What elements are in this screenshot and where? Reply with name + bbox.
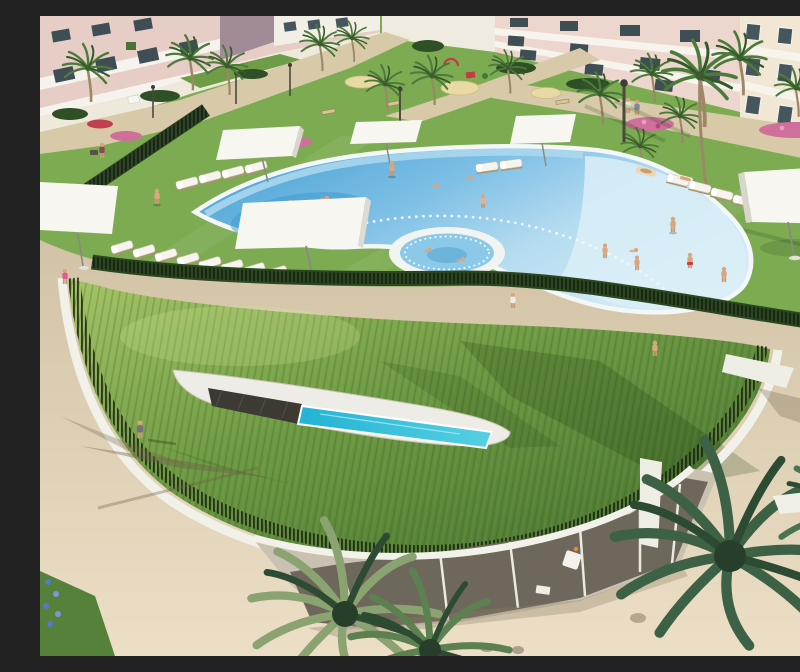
resort-aerial-render: Aerial render of a resort-style resident… (40, 16, 800, 656)
person-shadow (512, 646, 524, 654)
balcony-plant (126, 42, 136, 50)
lamp-flame (574, 547, 578, 551)
stroller (90, 150, 98, 155)
mound-sun-highlight (120, 306, 360, 366)
scene-svg: Aerial render of a resort-style resident… (40, 16, 800, 656)
white-van (128, 95, 140, 103)
person-shadow (630, 613, 646, 623)
red-swim-shorts (687, 262, 693, 265)
